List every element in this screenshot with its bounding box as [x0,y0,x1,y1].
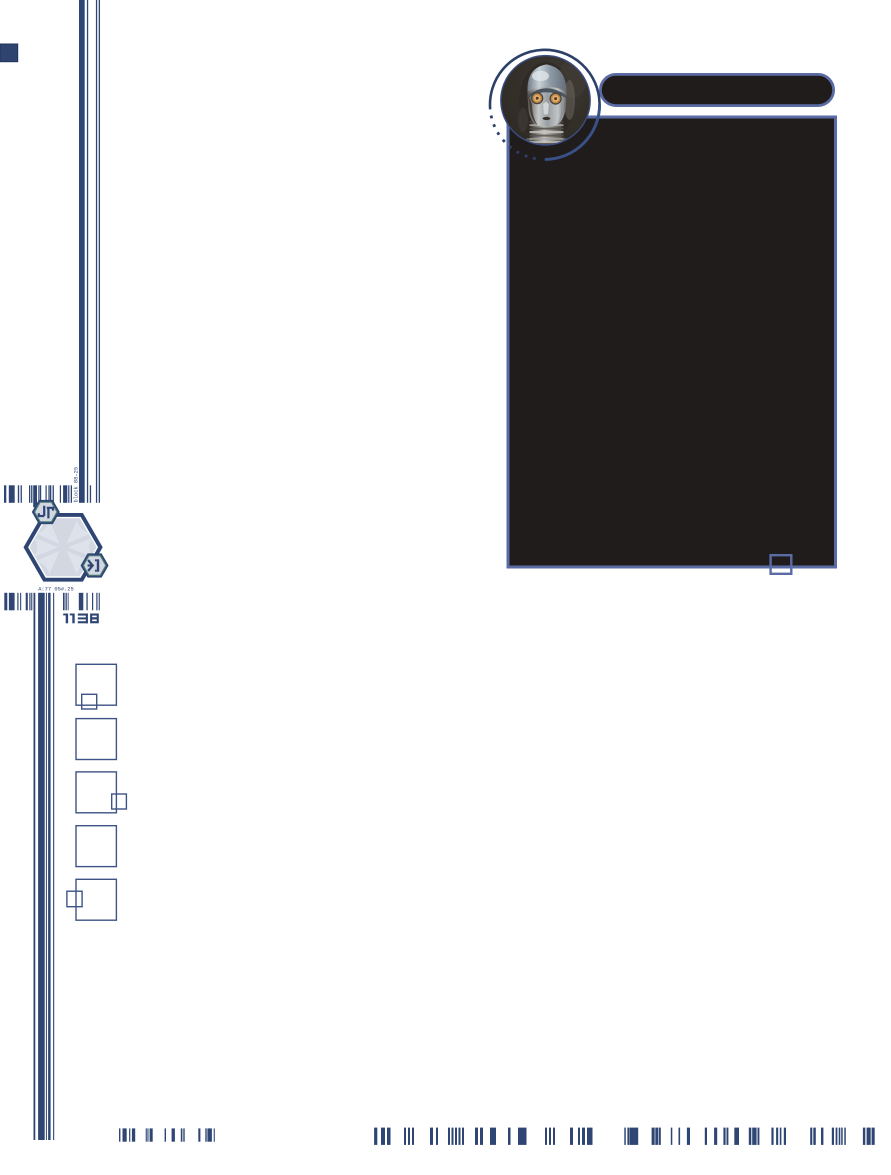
svg-text:block 88-25: block 88-25 [74,467,80,503]
svg-text:A:77 05#.25: A:77 05#.25 [38,587,74,593]
